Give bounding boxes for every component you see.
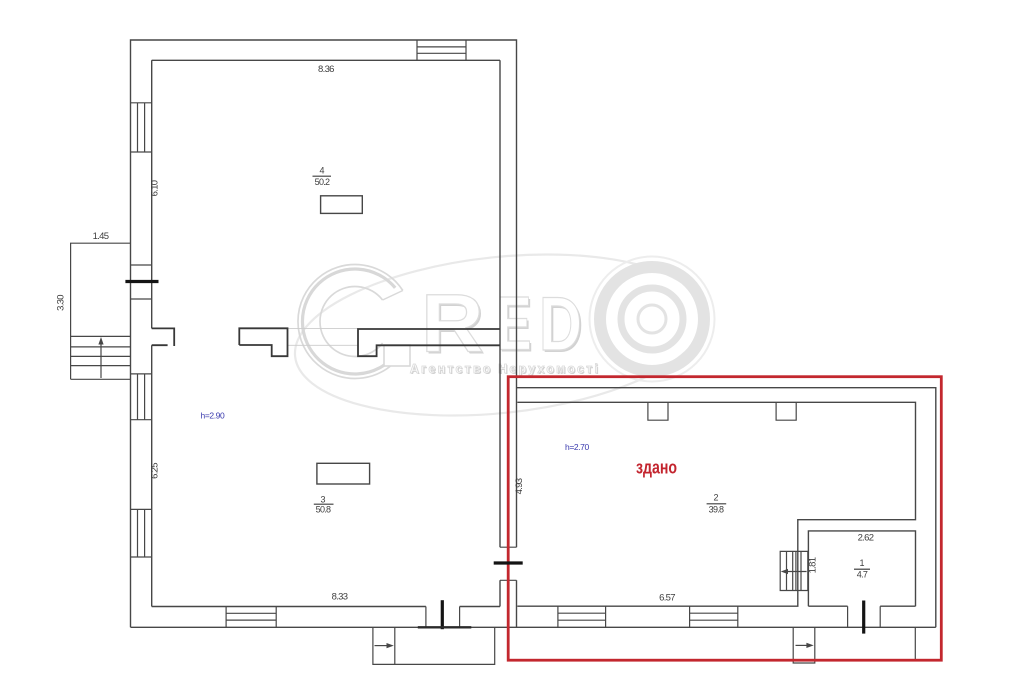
svg-text:здано: здано	[636, 458, 677, 478]
svg-text:8.36: 8.36	[318, 64, 334, 75]
svg-text:D: D	[539, 282, 582, 367]
svg-text:4.93: 4.93	[514, 478, 525, 494]
svg-text:R: R	[421, 277, 484, 370]
svg-text:1.45: 1.45	[93, 231, 109, 242]
svg-text:h=2.90: h=2.90	[201, 411, 226, 421]
svg-text:50.8: 50.8	[316, 505, 331, 515]
svg-text:h=2.70: h=2.70	[565, 442, 590, 452]
svg-text:E: E	[497, 282, 532, 367]
svg-text:2.62: 2.62	[858, 533, 874, 544]
svg-text:4.7: 4.7	[857, 570, 868, 580]
svg-text:2: 2	[713, 493, 718, 503]
svg-text:Агентство Нерухомості: Агентство Нерухомості	[410, 362, 600, 376]
svg-text:39.8: 39.8	[709, 505, 724, 515]
svg-text:6.57: 6.57	[659, 592, 675, 603]
svg-text:1: 1	[859, 558, 864, 568]
svg-text:3.30: 3.30	[56, 295, 67, 311]
svg-text:3: 3	[320, 495, 325, 505]
svg-text:6.10: 6.10	[150, 180, 161, 196]
svg-text:6.25: 6.25	[150, 463, 161, 479]
svg-text:4: 4	[319, 166, 324, 176]
svg-text:1.81: 1.81	[807, 557, 818, 573]
svg-text:8.33: 8.33	[332, 592, 348, 603]
svg-text:50.2: 50.2	[315, 177, 330, 187]
